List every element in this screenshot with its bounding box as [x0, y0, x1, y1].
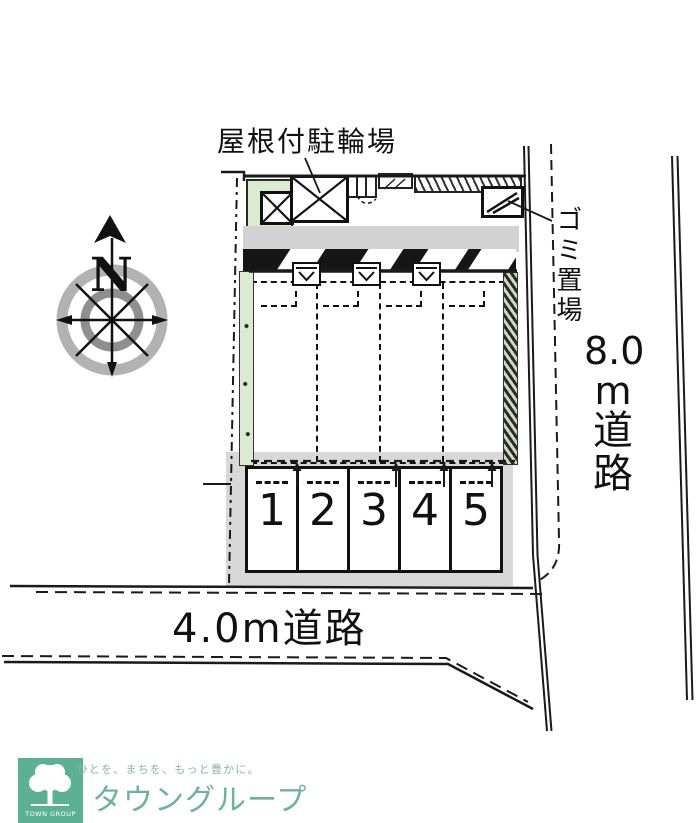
- site-boundary-top-notch: [221, 172, 244, 181]
- parking-stall: 3: [347, 469, 398, 570]
- wheel-stop-dash: [256, 481, 289, 484]
- bicycle-shed-icon: [290, 175, 349, 223]
- entrance-marker-icon: [412, 262, 441, 286]
- unit-divider: [442, 283, 444, 462]
- road-south-north-dashed: [36, 592, 549, 594]
- logo-caption: TOWN GROUP: [18, 810, 83, 818]
- road-south-north-solid: [10, 586, 533, 588]
- diagonal-mark-icon: [380, 178, 411, 190]
- road-south-south-dashed: [2, 656, 528, 702]
- road-east-size: 8.0: [584, 330, 642, 372]
- parking-lot: 1 2 3 4 5: [245, 466, 503, 573]
- hedge-strip-east: [503, 272, 518, 465]
- unit-closet-dash: [323, 291, 359, 307]
- road-east-east-line1: [672, 156, 687, 700]
- parking-stall: 4: [398, 469, 449, 570]
- road-south-south-solid: [4, 662, 533, 709]
- parking-stall: 2: [296, 469, 347, 570]
- equipment-bar: [378, 173, 413, 189]
- entrance-marker-icon: [352, 262, 381, 286]
- entrance-marker-icon: [292, 262, 321, 286]
- building-outline: [251, 281, 505, 464]
- band-stripe: [463, 249, 516, 272]
- unit-divider: [379, 283, 381, 462]
- wheel-stop-dash: [307, 481, 340, 484]
- garbage-area-icon: [481, 186, 524, 218]
- road-east-label: 8.0 m 道 路: [584, 330, 642, 496]
- road-east-west-line1: [524, 146, 547, 731]
- tree-icon: [18, 758, 83, 810]
- diagonal-mark-icon: [484, 189, 521, 215]
- wheel-stop-dash: [460, 481, 493, 484]
- parking-stall: 5: [449, 469, 500, 570]
- unit-closet-dash: [449, 291, 485, 307]
- road-east-unit: m: [584, 372, 642, 410]
- road-east-kanji: 路: [584, 453, 642, 496]
- road-east-kanji: 道: [584, 410, 642, 453]
- garbage-area-label: ゴミ置場: [549, 206, 586, 326]
- utility-box-icon: [260, 191, 294, 225]
- site-plan: 1 2 3 4 5 屋根付駐輪場 ゴミ置場 8.0 m 道 路 4.0m道路: [0, 0, 700, 823]
- compass-n-label: N: [90, 248, 133, 303]
- stall-number: 4: [401, 488, 449, 534]
- stall-number: 2: [299, 488, 347, 534]
- logo-brand-text: タウングループ: [92, 775, 307, 819]
- stall-number: 3: [350, 488, 398, 534]
- x-cross-icon: [293, 178, 346, 220]
- bicycle-parking-label: 屋根付駐輪場: [217, 120, 397, 160]
- compass-rose: N: [50, 205, 180, 380]
- unit-closet-dash: [261, 291, 297, 307]
- unit-closet-dash: [386, 291, 422, 307]
- wheel-stop-dash: [409, 481, 442, 484]
- planting-strip-west: [239, 271, 254, 466]
- unit-divider: [316, 283, 318, 462]
- road-south-label: 4.0m道路: [172, 596, 367, 654]
- stall-number: 1: [248, 488, 296, 534]
- stall-number: 5: [452, 488, 500, 534]
- road-east-east-line2: [678, 156, 693, 700]
- parking-stall: 1: [248, 469, 296, 570]
- x-cross-icon: [263, 194, 291, 222]
- town-group-logo: TOWN GROUP: [18, 758, 83, 823]
- equipment-box: [346, 175, 377, 198]
- wheel-stop-dash: [358, 481, 391, 484]
